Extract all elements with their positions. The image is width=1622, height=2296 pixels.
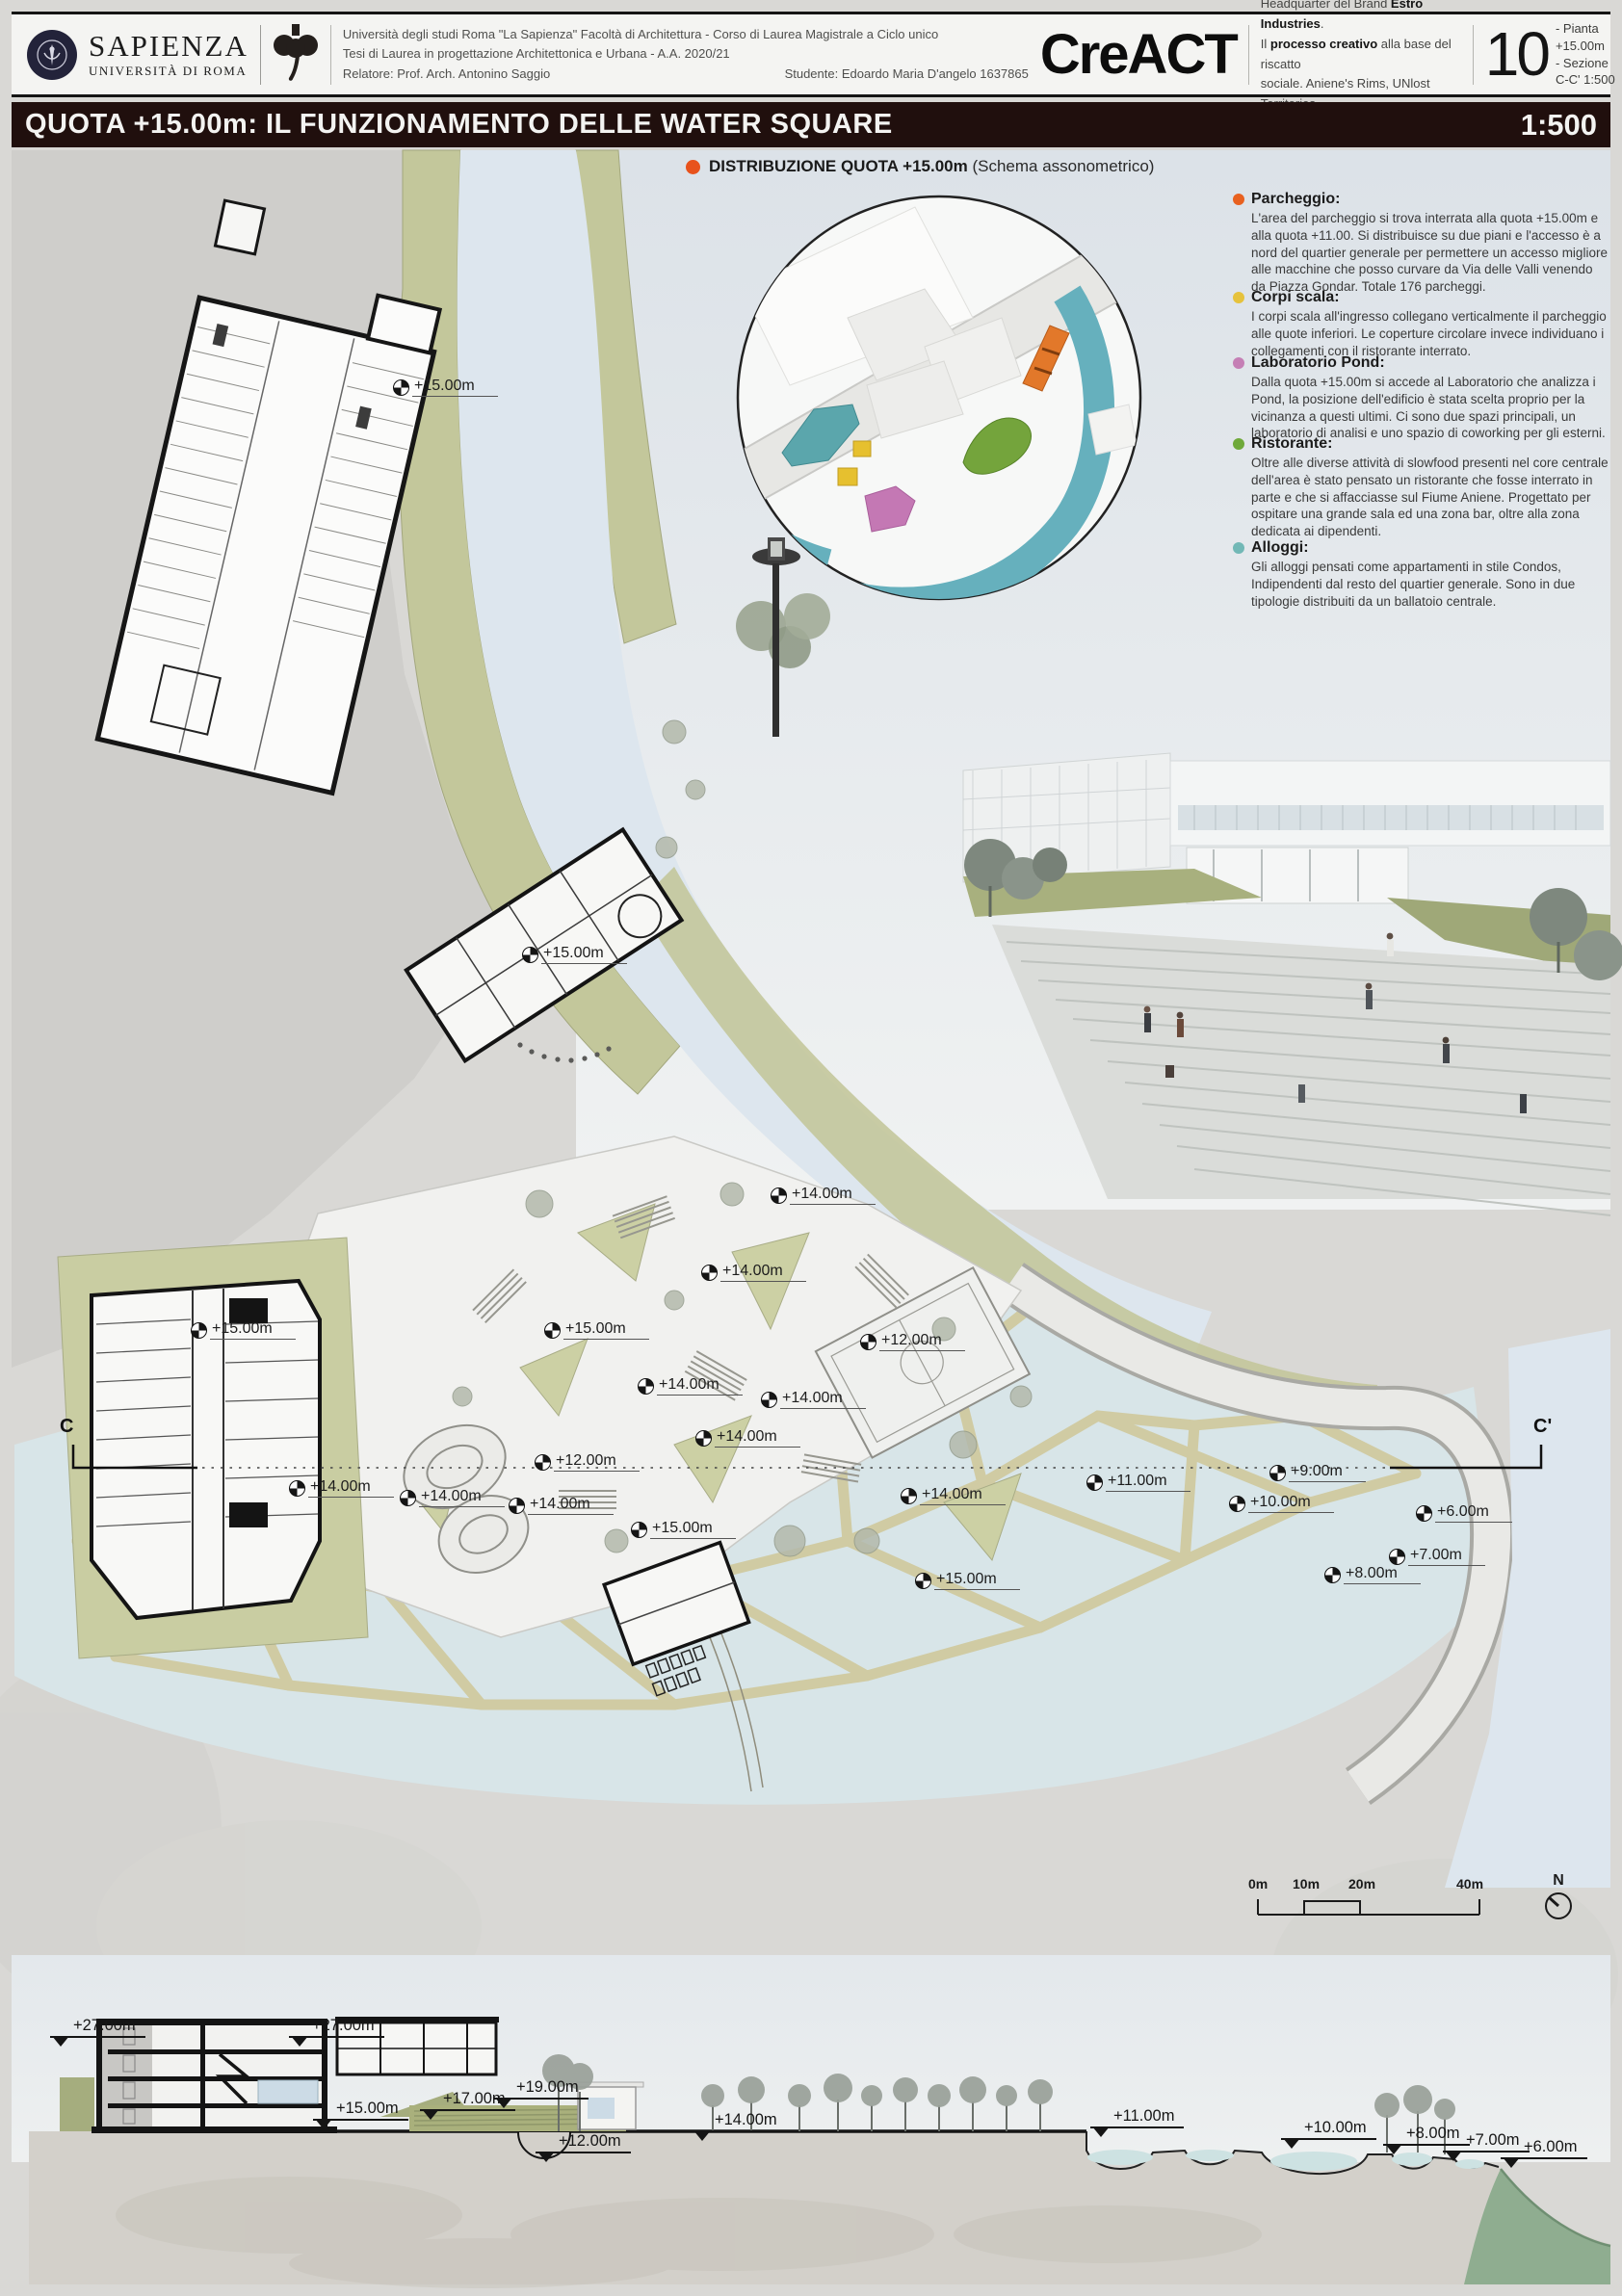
level-marker-icon bbox=[535, 1454, 551, 1471]
north-arrow: N bbox=[1537, 1872, 1580, 1927]
compass-icon bbox=[1542, 1890, 1575, 1922]
credits-line1: Università degli studi Roma "La Sapienza… bbox=[343, 25, 1029, 44]
alloggi-building-plan bbox=[58, 1238, 368, 1658]
legend-title: Parcheggio: bbox=[1251, 191, 1340, 208]
level-marker-icon bbox=[1389, 1549, 1405, 1565]
section-mark-c-prime: C' bbox=[1533, 1416, 1552, 1438]
sheet-info: - Pianta +15.00m - Sezione C-C' 1:500 bbox=[1556, 20, 1615, 88]
legend-text: I corpi scala all'ingresso collegano ver… bbox=[1251, 308, 1609, 359]
legend-alloggi: Alloggi: Gli alloggi pensati come appart… bbox=[1233, 539, 1609, 610]
plan-level-marker: +15.00m bbox=[522, 945, 627, 964]
sheet-number: 10 bbox=[1485, 27, 1548, 83]
plan-level-marker: +14.00m bbox=[400, 1488, 505, 1507]
legend-laboratorio-pond: Laboratorio Pond: Dalla quota +15.00m si… bbox=[1233, 354, 1609, 442]
plan-level-marker: +12.00m bbox=[535, 1452, 640, 1472]
plan-level-marker: +14.00m bbox=[509, 1496, 614, 1515]
level-marker-icon bbox=[1086, 1474, 1103, 1491]
section-level-marker: +6.00m bbox=[1501, 2138, 1587, 2159]
level-triangle-icon bbox=[537, 2152, 555, 2162]
level-triangle-icon bbox=[1445, 2151, 1462, 2161]
plan-level-marker: +14.00m bbox=[761, 1390, 866, 1409]
studente: Studente: Edoardo Maria D'angelo 1637865 bbox=[785, 65, 1029, 84]
legend-bullet-icon bbox=[1233, 438, 1244, 450]
level-triangle-icon bbox=[291, 2036, 308, 2047]
level-marker-icon bbox=[544, 1322, 561, 1339]
legend-ristorante: Ristorante: Oltre alle diverse attività … bbox=[1233, 435, 1609, 540]
legend-bullet-icon bbox=[1233, 542, 1244, 554]
legend-title: Laboratorio Pond: bbox=[1251, 354, 1385, 372]
legend-bullet-icon bbox=[1233, 357, 1244, 369]
header-divider bbox=[1473, 25, 1474, 85]
plan-level-marker: +15.00m bbox=[544, 1320, 649, 1340]
level-marker-icon bbox=[509, 1498, 525, 1514]
level-triangle-icon bbox=[422, 2109, 439, 2120]
plan-level-marker: +15.00m bbox=[393, 378, 498, 397]
plan-level-marker: +14.00m bbox=[289, 1478, 394, 1498]
level-marker-icon bbox=[701, 1265, 718, 1281]
relatore: Relatore: Prof. Arch. Antonino Saggio bbox=[343, 65, 550, 84]
level-triangle-icon bbox=[52, 2036, 69, 2047]
legend-text: Gli alloggi pensati come appartamenti in… bbox=[1251, 559, 1609, 610]
level-marker-icon bbox=[860, 1334, 876, 1350]
section-level-marker: +27.00m bbox=[289, 2017, 384, 2038]
section-level-marker: +17.00m bbox=[420, 2090, 515, 2111]
level-marker-icon bbox=[695, 1430, 712, 1447]
legend-bullet-icon bbox=[1233, 194, 1244, 205]
level-marker-icon bbox=[1269, 1465, 1286, 1481]
plan-level-marker: +14.00m bbox=[695, 1428, 800, 1448]
level-marker-icon bbox=[761, 1392, 777, 1408]
plan-level-marker: +14.00m bbox=[771, 1186, 876, 1205]
plan-level-marker: +14.00m bbox=[901, 1486, 1006, 1505]
legend-corpi-scala: Corpi scala: I corpi scala all'ingresso … bbox=[1233, 289, 1609, 359]
section-level-marker: +27.00m bbox=[50, 2017, 145, 2038]
schema-caption: DISTRIBUZIONE QUOTA +15.00m (Schema asso… bbox=[686, 157, 1154, 176]
plan-level-marker: +15.00m bbox=[191, 1320, 296, 1340]
project-description: Headquarter del Brand Estro Industries. … bbox=[1261, 0, 1461, 115]
level-triangle-icon bbox=[1503, 2157, 1520, 2168]
plan-level-marker: +14.00m bbox=[638, 1376, 743, 1396]
legend-text: Dalla quota +15.00m si accede al Laborat… bbox=[1251, 374, 1609, 442]
legend-bullet-icon bbox=[1233, 292, 1244, 303]
small-building-plan bbox=[215, 200, 264, 254]
plan-level-marker: +14.00m bbox=[701, 1263, 806, 1282]
level-triangle-icon bbox=[1385, 2144, 1402, 2154]
section-level-marker: +12.00m bbox=[536, 2132, 631, 2153]
sheet-scale: 1:500 bbox=[1521, 108, 1597, 143]
legend-text: L'area del parcheggio si trova interrata… bbox=[1251, 210, 1609, 296]
level-marker-icon bbox=[631, 1522, 647, 1538]
scale-bar-graphic bbox=[1248, 1893, 1499, 1920]
header-bar: SAPIENZA UNIVERSITÀ DI ROMA Università d… bbox=[12, 12, 1610, 97]
section-level-marker: +15.00m bbox=[313, 2100, 408, 2121]
credits-line2: Tesi di Laurea in progettazione Architet… bbox=[343, 44, 1029, 64]
level-triangle-icon bbox=[1283, 2138, 1300, 2149]
header-divider bbox=[330, 25, 331, 85]
level-marker-icon bbox=[191, 1322, 207, 1339]
sheet-title: QUOTA +15.00m: IL FUNZIONAMENTO DELLE WA… bbox=[25, 109, 893, 141]
header-divider bbox=[260, 25, 261, 85]
legend-title: Corpi scala: bbox=[1251, 289, 1340, 306]
schema-bullet-icon bbox=[686, 160, 700, 174]
plan-level-marker: +10.00m bbox=[1229, 1494, 1334, 1513]
level-marker-icon bbox=[522, 947, 538, 963]
schema-corpi-scala-shape bbox=[853, 441, 871, 457]
level-marker-icon bbox=[393, 379, 409, 396]
level-marker-icon bbox=[1229, 1496, 1245, 1512]
plan-level-marker: +6.00m bbox=[1416, 1503, 1512, 1523]
scale-bar: 0m 10m 20m 40m bbox=[1248, 1876, 1499, 1920]
section-level-marker: +10.00m bbox=[1281, 2119, 1376, 2140]
sheet-title-bar: QUOTA +15.00m: IL FUNZIONAMENTO DELLE WA… bbox=[12, 102, 1610, 147]
level-marker-icon bbox=[771, 1187, 787, 1204]
plan-level-marker: +7.00m bbox=[1389, 1547, 1485, 1566]
legend-parcheggio: Parcheggio: L'area del parcheggio si tro… bbox=[1233, 191, 1609, 296]
plan-level-marker: +8.00m bbox=[1324, 1565, 1421, 1584]
legend-text: Oltre alle diverse attività di slowfood … bbox=[1251, 455, 1609, 540]
level-marker-icon bbox=[901, 1488, 917, 1504]
plan-level-marker: +12.00m bbox=[860, 1332, 965, 1351]
project-logo: CreACT bbox=[1040, 22, 1237, 87]
section-level-marker: +11.00m bbox=[1090, 2107, 1184, 2128]
section-mark-c: C bbox=[60, 1416, 73, 1438]
sapienza-emblem bbox=[27, 30, 77, 80]
level-marker-icon bbox=[915, 1573, 931, 1589]
plan-level-marker: +9.00m bbox=[1269, 1463, 1366, 1482]
level-marker-icon bbox=[1416, 1505, 1432, 1522]
axon-schema bbox=[738, 196, 1140, 603]
plan-level-marker: +15.00m bbox=[915, 1571, 1020, 1590]
level-marker-icon bbox=[400, 1490, 416, 1506]
elephant-logo-icon bbox=[273, 22, 319, 87]
section-level-marker: +14.00m bbox=[692, 2111, 787, 2132]
level-triangle-icon bbox=[315, 2119, 332, 2129]
sapienza-wordmark: SAPIENZA bbox=[89, 31, 249, 61]
level-triangle-icon bbox=[693, 2130, 711, 2141]
level-marker-icon bbox=[289, 1480, 305, 1497]
level-marker-icon bbox=[638, 1378, 654, 1395]
plan-level-marker: +11.00m bbox=[1086, 1473, 1190, 1492]
level-marker-icon bbox=[1324, 1567, 1341, 1583]
legend-title: Ristorante: bbox=[1251, 435, 1332, 453]
university-name: SAPIENZA UNIVERSITÀ DI ROMA bbox=[89, 31, 249, 79]
plan-level-marker: +15.00m bbox=[631, 1520, 736, 1539]
level-triangle-icon bbox=[1092, 2126, 1110, 2137]
thesis-credits: Università degli studi Roma "La Sapienza… bbox=[343, 25, 1029, 83]
legend-title: Alloggi: bbox=[1251, 539, 1309, 557]
header-divider bbox=[1248, 25, 1249, 85]
